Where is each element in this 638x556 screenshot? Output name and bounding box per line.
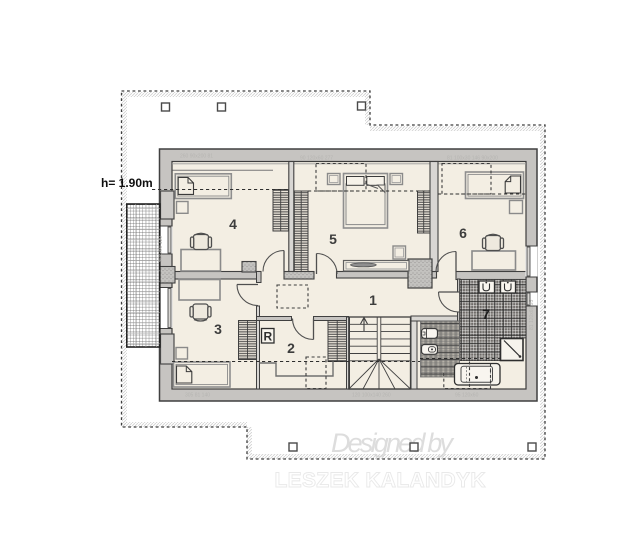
svg-text:Designed by: Designed by	[331, 428, 455, 458]
svg-text:7: 7	[482, 306, 490, 322]
svg-text:LESZEK KALANDYK: LESZEK KALANDYK	[275, 469, 490, 492]
svg-text:81 120x60 95: 81 120x60 95	[529, 299, 535, 330]
svg-text:R: R	[263, 330, 272, 344]
svg-text:5: 5	[329, 231, 337, 247]
svg-text:90x200 120: 90x200 120	[158, 236, 164, 262]
svg-text:90 120x60 277: 90 120x60 277	[300, 156, 333, 162]
svg-text:305 81 140: 305 81 140	[185, 393, 210, 399]
svg-text:120 100x140 260: 120 100x140 260	[352, 393, 391, 399]
svg-text:h= 1.90m: h= 1.90m	[101, 176, 153, 190]
svg-text:4: 4	[229, 216, 237, 232]
svg-text:2: 2	[287, 340, 295, 356]
svg-text:1: 1	[369, 292, 377, 308]
svg-text:260 90x200 81: 260 90x200 81	[180, 154, 213, 160]
svg-text:3: 3	[214, 321, 222, 337]
svg-text:95 120x60: 95 120x60	[455, 393, 479, 399]
svg-text:81 100x30 146 90x200: 81 100x30 146 90x200	[447, 156, 498, 162]
svg-text:6: 6	[459, 225, 467, 241]
